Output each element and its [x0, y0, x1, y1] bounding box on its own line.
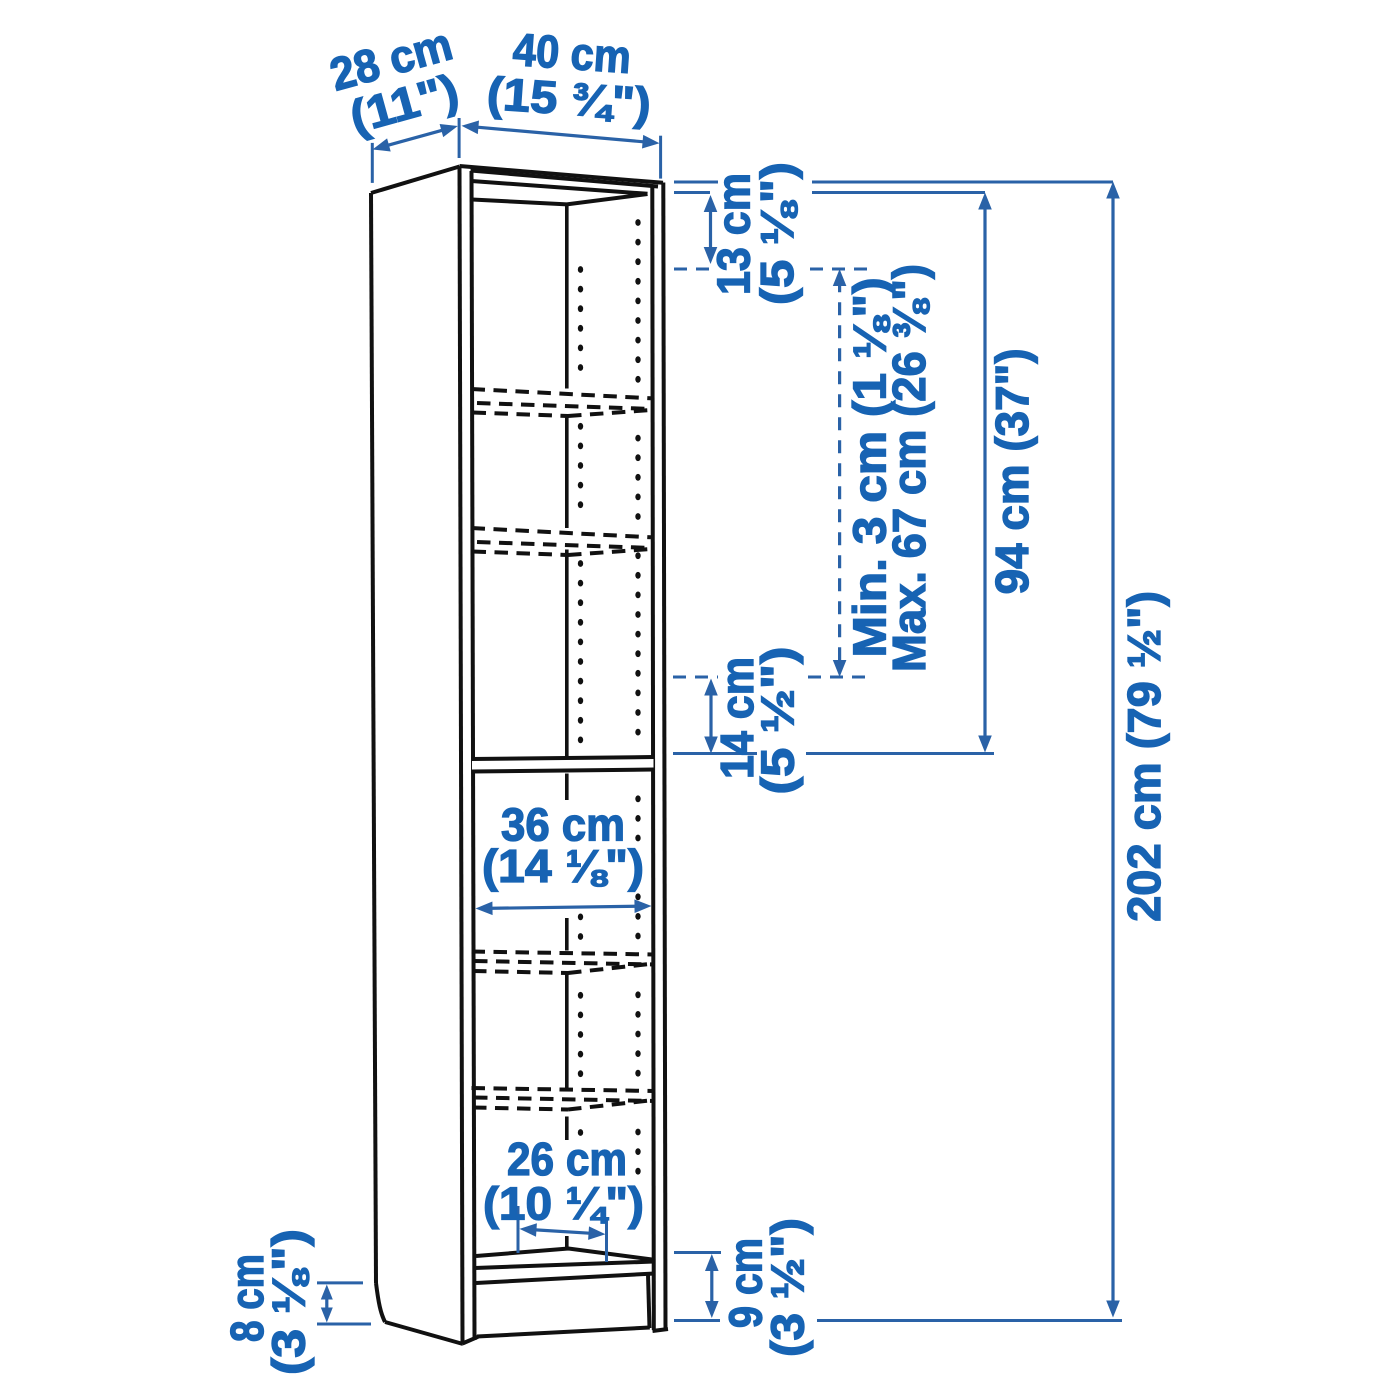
- svg-text:(3 ½"): (3 ½"): [762, 1218, 814, 1357]
- svg-text:(5 ½"): (5 ½"): [752, 647, 804, 795]
- svg-text:(5 ⅛"): (5 ⅛"): [751, 162, 803, 305]
- svg-text:Max. 67 cm (26 ⅜"): Max. 67 cm (26 ⅜"): [883, 264, 935, 672]
- svg-text:(14 ⅛"): (14 ⅛"): [482, 840, 644, 892]
- svg-text:94 cm (37"): 94 cm (37"): [986, 348, 1038, 594]
- svg-text:(3 ⅛"): (3 ⅛"): [263, 1229, 315, 1375]
- svg-text:(10 ¼"): (10 ¼"): [483, 1178, 644, 1230]
- svg-text:202 cm (79 ½"): 202 cm (79 ½"): [1118, 591, 1170, 922]
